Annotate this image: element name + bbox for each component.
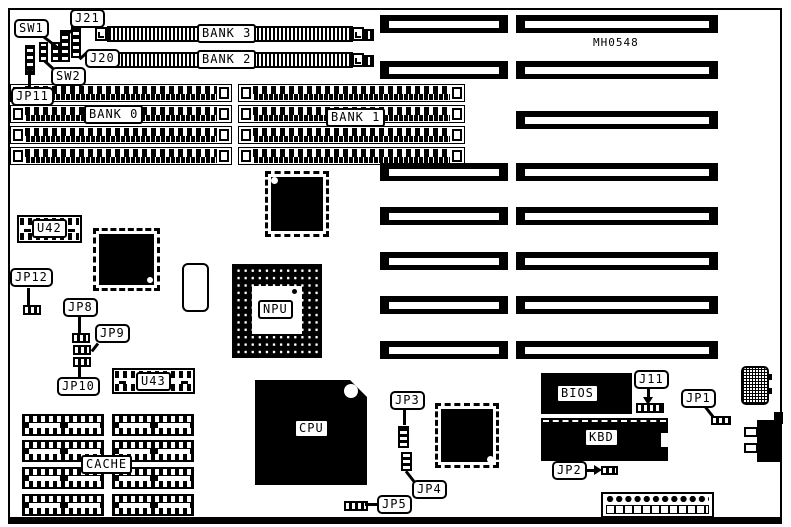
label-bank1: BANK 1 [326,108,385,127]
expansion-slot [380,15,508,33]
callout-jp5: JP5 [377,495,412,514]
arrow-up-icon [25,66,35,74]
simm-row-bank0 [10,126,232,144]
jumper-jp10 [73,357,91,367]
label-cpu: CPU [294,419,329,438]
cache-chip [22,414,104,436]
power-pins [606,495,709,503]
callout-sw2: SW2 [51,67,86,86]
callout-j21: J21 [70,9,105,28]
expansion-slot [380,341,508,359]
connector-tab [744,443,758,453]
callout-jp2: JP2 [552,461,587,480]
callout-sw1: SW1 [14,19,49,38]
expansion-slot [516,296,718,314]
callout-jp9: JP9 [95,324,130,343]
power-cells [606,505,709,514]
callout-tail [403,409,406,425]
callout-jp12: JP12 [10,268,53,287]
dip-switch-sw2 [39,42,48,62]
callout-tail [78,316,81,333]
label-u42: U42 [32,219,67,238]
callout-tail [28,74,31,88]
expansion-slot [516,207,718,225]
jumper-jp3 [398,426,409,448]
label-bank3: BANK 3 [197,24,256,43]
expansion-slot [516,341,718,359]
chip-notch [661,433,668,447]
callout-j11: J11 [634,370,669,389]
simm-socket-end [364,29,374,41]
expansion-slot [380,252,508,270]
expansion-slot [380,207,508,225]
pin1-dot [271,177,278,184]
board-id: MH0548 [593,36,639,49]
expansion-slot [516,15,718,33]
jumper-jp2 [601,466,618,475]
label-bank0: BANK 0 [84,105,143,124]
expansion-slot [380,163,508,181]
callout-jp11: JP11 [11,87,54,106]
simm-socket-end [364,55,374,67]
cache-chip [112,414,194,436]
jumper-jp8 [72,333,90,343]
label-bios: BIOS [556,384,599,403]
chip-dash-line [543,420,666,422]
expansion-slot [380,61,508,79]
jumper-jp9 [73,345,91,355]
crystal-oscillator [182,263,209,312]
jumper-jp1 [711,416,731,425]
callout-jp10: JP10 [57,377,100,396]
expansion-slot [516,111,718,129]
label-npu: NPU [258,300,293,319]
label-bank2: BANK 2 [197,50,256,69]
motherboard-layout-diagram: SW1 J21 J20 SW2 JP11 BANK 3 BANK 2 BANK … [0,0,791,527]
pin1-dot [292,289,297,294]
component-lead [768,388,772,394]
connector-tab [744,427,758,437]
callout-jp1: JP1 [681,389,716,408]
expansion-slot [516,252,718,270]
pin1-dot [147,277,153,283]
simm-latch [95,27,107,41]
callout-tail [27,288,30,305]
label-u43: U43 [136,372,171,391]
expansion-slot [380,296,508,314]
callout-jp8: JP8 [63,298,98,317]
keyboard-fuse [741,366,769,405]
callout-j20: J20 [85,49,120,68]
expansion-slot [516,61,718,79]
callout-jp3: JP3 [390,391,425,410]
label-cache: CACHE [81,455,132,474]
label-kbd: KBD [584,428,619,447]
simm-row-bank0 [10,147,232,165]
cache-chip [112,494,194,516]
simm-latch [352,53,364,67]
simm-row-bank1 [238,126,465,144]
pin1-dot [487,456,494,463]
arrow-down-icon [643,397,653,405]
simm-row-bank1 [238,84,465,102]
power-connector [601,492,714,518]
simm-latch [352,27,364,41]
expansion-slot [516,163,718,181]
cache-chip [22,494,104,516]
jumper-jp12 [23,305,41,315]
component-lead [768,374,772,380]
callout-jp4: JP4 [412,480,447,499]
jumper-jp4 [401,452,412,471]
arrow-right-icon [594,465,602,475]
pin1-dot [344,384,358,398]
keyboard-din-connector [757,420,782,462]
